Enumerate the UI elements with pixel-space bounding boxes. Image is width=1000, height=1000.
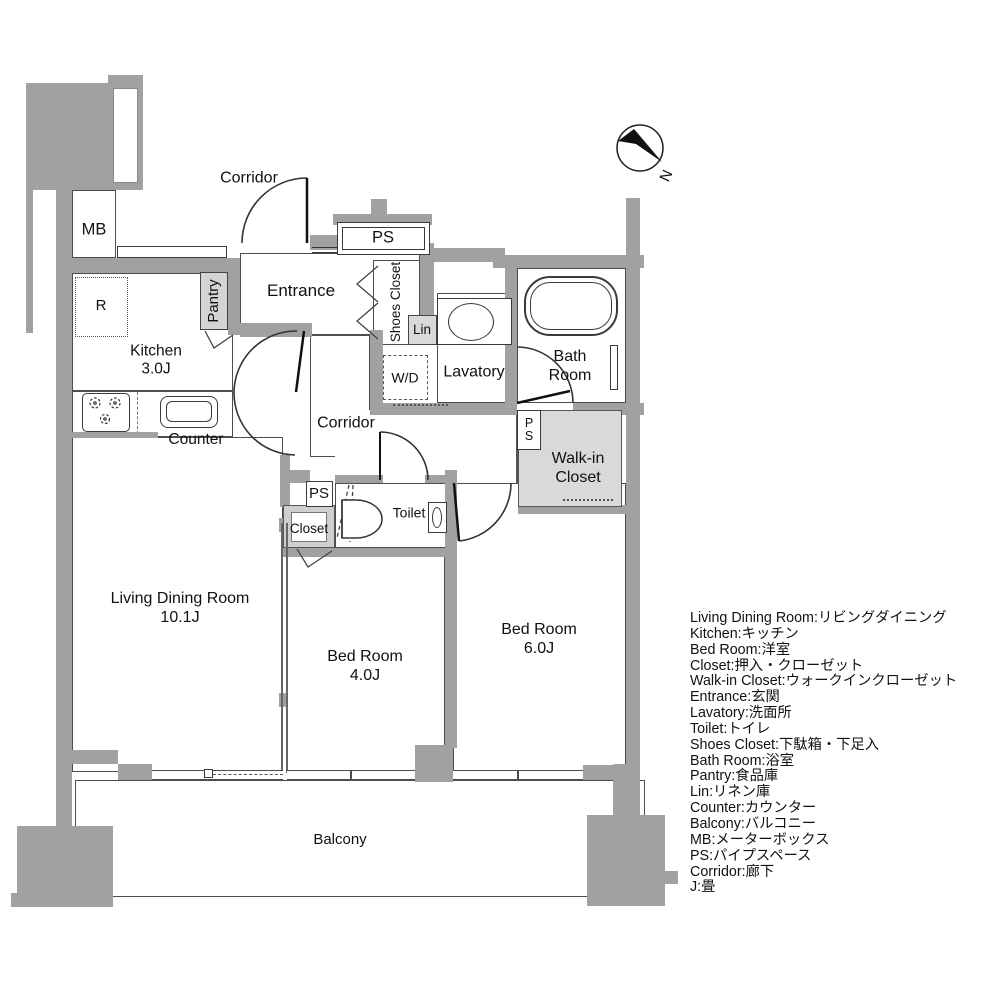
wall-segment	[72, 750, 118, 764]
label-toilet: Toilet	[393, 505, 426, 522]
bed6-size: 6.0J	[524, 640, 554, 657]
wall-segment	[425, 475, 447, 483]
bed6-name: Bed Room	[501, 621, 577, 638]
label-walkin-closet: Walk-in Closet	[552, 450, 605, 488]
legend-item: Closet:押入・クローゼット	[690, 659, 957, 675]
label-corridor-top: Corridor	[220, 170, 278, 189]
sliding-partition	[281, 523, 283, 773]
ps-wic-p: P	[525, 416, 533, 430]
bathtub-inner	[530, 282, 612, 330]
vanity-sink	[448, 303, 494, 341]
legend-item: Entrance:玄関	[690, 690, 957, 706]
wall-segment	[17, 826, 113, 907]
corridor-cabinet	[117, 246, 227, 258]
label-living-dining: Living Dining Room 10.1J	[111, 590, 250, 628]
legend-item: PS:パイプスペース	[690, 849, 957, 865]
bed4-size: 4.0J	[350, 667, 380, 684]
bath-line2: Room	[549, 367, 592, 384]
ldr-size: 10.1J	[160, 609, 199, 626]
wall-segment	[56, 190, 72, 838]
wall-segment	[493, 255, 644, 268]
label-corridor-mid: Corridor	[317, 415, 375, 434]
label-bath-room: Bath Room	[549, 348, 592, 386]
stove-box	[82, 393, 130, 432]
door-leaf	[296, 331, 304, 392]
label-balcony: Balcony	[313, 831, 366, 849]
compass-needle	[618, 129, 662, 162]
compass: N	[617, 125, 675, 184]
wall-segment	[26, 83, 33, 333]
label-entrance: Entrance	[267, 281, 335, 301]
compass-north-label: N	[655, 167, 675, 184]
wall-segment	[626, 198, 640, 770]
towel-hatch	[393, 404, 448, 406]
wic-line2: Closet	[555, 469, 600, 486]
ps-wic-s: S	[525, 429, 533, 443]
legend-item: Living Dining Room:リビングダイニング	[690, 611, 957, 627]
label-lin: Lin	[413, 322, 431, 338]
label-ps-closet: PS	[309, 485, 329, 503]
wall-segment	[665, 871, 678, 884]
toilet-tank-knob	[432, 507, 442, 528]
label-pantry: Pantry	[205, 279, 223, 322]
legend-item: Toilet:トイレ	[690, 722, 957, 738]
label-ps-entrance: PS	[372, 228, 394, 247]
wall-opening	[113, 88, 138, 183]
window-jamb	[350, 770, 352, 780]
window-living	[152, 770, 283, 780]
label-bedroom-6: Bed Room 6.0J	[501, 621, 577, 659]
wall-segment	[283, 548, 453, 557]
legend-item: J:畳	[690, 880, 957, 896]
legend-item: Lin:リネン庫	[690, 785, 957, 801]
wall-segment	[240, 323, 312, 337]
ldr-name: Living Dining Room	[111, 590, 250, 607]
wall-segment	[370, 330, 383, 412]
label-refrigerator: R	[96, 297, 107, 315]
kitchen-sink-inner	[166, 401, 212, 422]
legend-item: MB:メーターボックス	[690, 833, 957, 849]
label-washer-dryer: W/D	[391, 370, 418, 387]
wall-segment	[11, 893, 17, 907]
wall-segment	[118, 764, 152, 780]
window-dash	[213, 774, 283, 775]
legend: Living Dining Room:リビングダイニングKitchen:キッチン…	[690, 611, 957, 896]
wall-segment	[72, 258, 233, 273]
shower-panel	[610, 345, 618, 390]
closet-hatch	[563, 499, 613, 501]
compass-circle	[617, 125, 663, 171]
wall-segment	[335, 475, 383, 483]
label-shoes-closet: Shoes Closet	[388, 262, 404, 342]
label-ps-wic: P S	[525, 417, 533, 443]
label-lavatory: Lavatory	[443, 364, 504, 383]
label-bedroom-4: Bed Room 4.0J	[327, 648, 403, 686]
wall-segment	[33, 83, 108, 190]
window-handle	[204, 769, 213, 778]
floor-plan: N Corridor MB PS Entrance Pantry Shoes C…	[0, 0, 1000, 1000]
legend-item: Pantry:食品庫	[690, 769, 957, 785]
bed4-name: Bed Room	[327, 648, 403, 665]
stove-base	[72, 432, 158, 438]
legend-item: Corridor:廊下	[690, 865, 957, 881]
sliding-partition	[286, 523, 288, 773]
label-counter: Counter	[168, 431, 223, 449]
legend-item: Walk-in Closet:ウォークインクローゼット	[690, 674, 957, 690]
wall-segment	[280, 455, 290, 507]
wall-segment	[415, 745, 453, 782]
kitchen-size: 3.0J	[141, 361, 170, 378]
counter-top-line	[72, 390, 232, 392]
label-kitchen: Kitchen 3.0J	[130, 343, 182, 380]
label-mb: MB	[82, 220, 107, 239]
legend-item: Bed Room:洋室	[690, 643, 957, 659]
legend-item: Lavatory:洗面所	[690, 706, 957, 722]
window-jamb	[517, 770, 519, 780]
wall-segment	[371, 199, 387, 214]
bath-line1: Bath	[554, 348, 587, 365]
legend-item: Balcony:バルコニー	[690, 817, 957, 833]
legend-item: Counter:カウンター	[690, 801, 957, 817]
counter-divider	[137, 392, 138, 434]
wall-segment	[587, 815, 665, 906]
kitchen-name: Kitchen	[130, 343, 182, 360]
wall-segment	[583, 765, 626, 780]
legend-item: Kitchen:キッチン	[690, 627, 957, 643]
legend-item: Shoes Closet:下駄箱・下足入	[690, 738, 957, 754]
wall-segment	[228, 258, 240, 335]
label-closet: Closet	[290, 521, 328, 537]
wic-line1: Walk-in	[552, 450, 605, 467]
